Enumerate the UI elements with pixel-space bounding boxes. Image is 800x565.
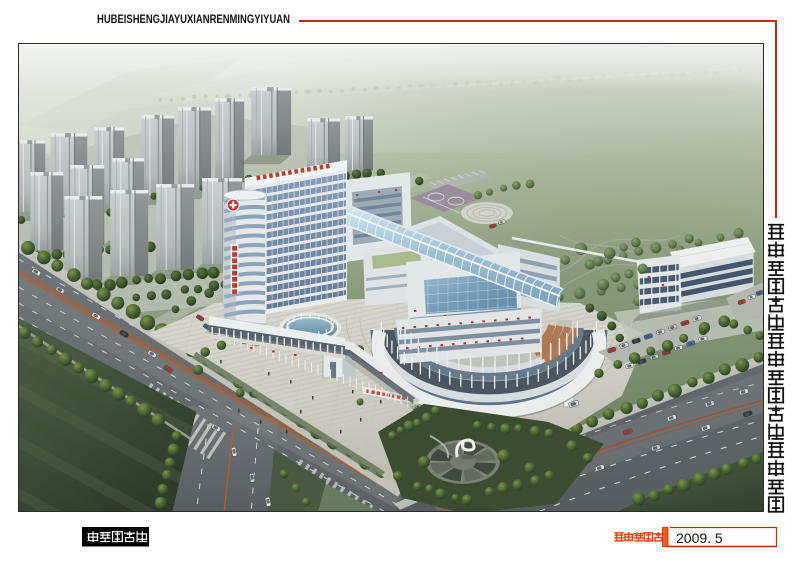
svg-text:2009. 5: 2009. 5 <box>676 530 723 546</box>
